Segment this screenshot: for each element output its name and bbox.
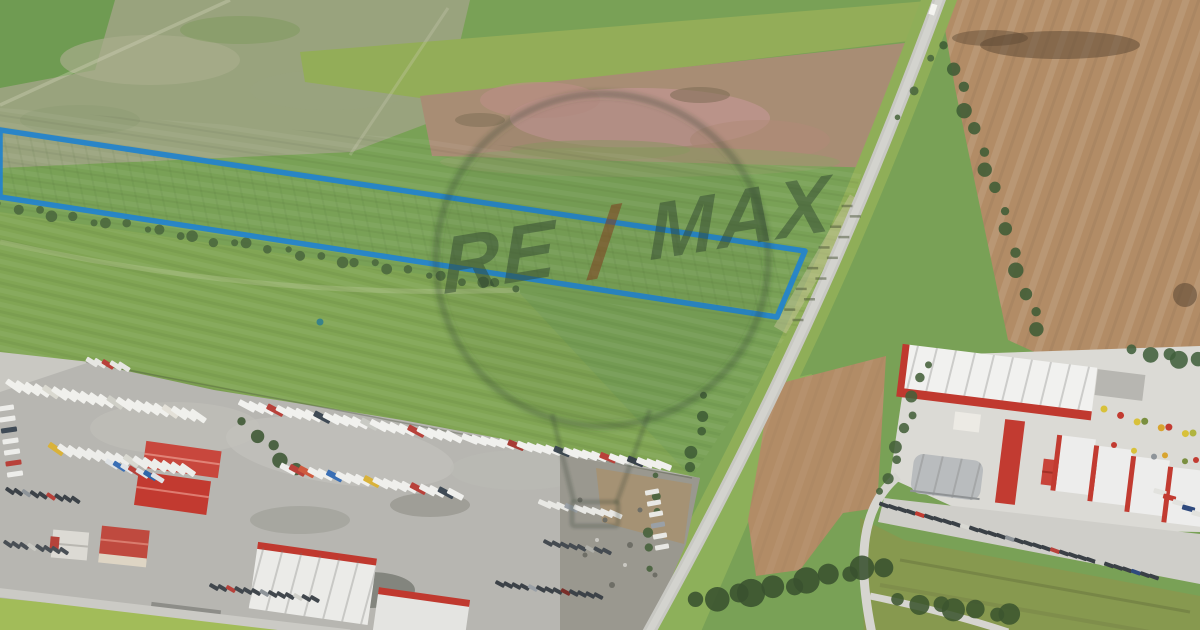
hedge-bush xyxy=(876,488,883,495)
hedge-bush xyxy=(36,206,44,214)
hedge-bush xyxy=(317,252,325,260)
hedge-bush xyxy=(646,566,652,572)
hedge-bush xyxy=(685,462,695,472)
hedge-bush xyxy=(895,115,901,121)
hedge-bush xyxy=(643,527,653,537)
hedge-bush xyxy=(850,556,875,581)
aerial-photo: RE / MAX xyxy=(0,0,1200,630)
hedge-bush xyxy=(645,543,653,551)
hedge-bush xyxy=(269,440,279,450)
hedge-bush xyxy=(100,218,111,229)
hedge-bush xyxy=(909,595,929,615)
equipment-dot xyxy=(1131,448,1137,454)
hedge-bush xyxy=(874,558,893,577)
hedge-bush xyxy=(251,430,264,443)
hedge-bush xyxy=(209,238,218,247)
hedge-bush xyxy=(381,264,392,275)
furrow-tick xyxy=(796,288,807,291)
hedge-bush xyxy=(241,237,252,248)
hedge-bush xyxy=(46,211,58,223)
fallow-patch xyxy=(180,16,300,44)
hedge-bush xyxy=(91,219,98,226)
office-building xyxy=(98,526,150,568)
hedge-bush xyxy=(909,412,917,420)
hedge-bush xyxy=(999,603,1021,625)
equipment-dot xyxy=(1117,412,1124,419)
hedge-bush xyxy=(68,212,77,221)
hedge-bush xyxy=(1020,288,1032,300)
furrow-tick xyxy=(850,215,861,218)
hedge-bush xyxy=(285,246,291,252)
hedge-bush xyxy=(337,257,349,269)
equipment-dot xyxy=(1182,430,1189,437)
hedge-bush xyxy=(177,232,185,240)
dark-patch xyxy=(455,113,505,127)
hedge-bush xyxy=(1031,307,1040,316)
hedge-bush xyxy=(1001,207,1009,215)
hedge-bush xyxy=(959,82,969,92)
map-marker-dot xyxy=(317,319,324,326)
hedge-bush xyxy=(1008,263,1023,278)
house xyxy=(49,529,89,560)
equipment-dot xyxy=(1193,457,1199,463)
hedge-bush xyxy=(404,265,413,274)
equipment-dot xyxy=(1141,418,1148,425)
furrow-tick xyxy=(838,236,849,239)
equipment-dot xyxy=(1134,418,1141,425)
hedge-bush xyxy=(980,147,989,156)
hedge-bush xyxy=(14,205,24,215)
hedge-bush xyxy=(942,598,965,621)
hedge-bush xyxy=(349,258,358,267)
hedge-bush xyxy=(186,230,198,242)
hedge-bush xyxy=(697,411,708,422)
furrow-tick xyxy=(827,257,838,260)
hedge-bush xyxy=(1127,344,1137,354)
hedge-bush xyxy=(761,575,784,598)
watermark-slash: / xyxy=(584,187,625,300)
equipment-dot xyxy=(1182,458,1188,464)
watermark-re: RE xyxy=(441,203,559,312)
hedge-bush xyxy=(989,182,1000,193)
hedge-bush xyxy=(295,251,305,261)
hedge-bush xyxy=(905,391,917,403)
satellite-scene: RE / MAX xyxy=(0,0,1200,630)
equipment-dot xyxy=(1165,424,1172,431)
hedge-bush xyxy=(688,592,703,607)
hedge-bush xyxy=(968,122,980,134)
equipment-dot xyxy=(1111,442,1117,448)
hedge-bush xyxy=(891,593,904,606)
hedge-bush xyxy=(927,55,934,62)
furrow-tick xyxy=(804,298,815,301)
small-office xyxy=(953,411,981,432)
hedge-bush xyxy=(910,86,919,95)
hedge-bush xyxy=(1143,347,1159,363)
hedge-bush xyxy=(889,441,902,454)
hedge-bush xyxy=(372,259,379,266)
hangar xyxy=(910,453,984,501)
hedge-bush xyxy=(892,455,901,464)
industrial-complex xyxy=(860,344,1200,630)
dark-patch xyxy=(670,87,730,103)
hedge-bush xyxy=(1029,322,1043,336)
hedge-bush xyxy=(145,226,151,232)
furrow-tick xyxy=(784,308,795,311)
hedge-bush xyxy=(653,473,659,479)
equipment-dot xyxy=(1162,452,1168,458)
hedge-bush xyxy=(426,273,432,279)
dark-soil-patch xyxy=(952,30,1028,46)
hedge-bush xyxy=(947,62,960,75)
hedge-bush xyxy=(883,473,894,484)
equipment-dot xyxy=(1158,424,1165,431)
equipment-dot xyxy=(1101,406,1108,413)
hedge-bush xyxy=(154,225,164,235)
furrow-tick xyxy=(815,277,826,280)
hedge-bush xyxy=(793,567,819,593)
hedge-bush xyxy=(1010,247,1020,257)
hedge-bush xyxy=(999,222,1012,235)
hedge-bush xyxy=(1170,351,1188,369)
hedge-bush xyxy=(956,103,971,118)
hedge-bush xyxy=(237,417,245,425)
hedge-bush xyxy=(231,239,238,246)
hedge-bush xyxy=(705,587,730,612)
equipment-dot xyxy=(1190,430,1197,437)
hedge-bush xyxy=(925,361,932,368)
hedge-bush xyxy=(697,427,706,436)
hedge-bush xyxy=(915,373,925,383)
dark-soil-spot xyxy=(1173,283,1197,307)
hedge-bush xyxy=(737,579,765,607)
hedge-bush xyxy=(978,163,992,177)
hedge-bush xyxy=(818,564,839,585)
hedge-bush xyxy=(899,423,909,433)
furrow-tick xyxy=(793,319,804,322)
stain xyxy=(250,506,350,534)
equipment-dot xyxy=(1151,454,1157,460)
hedge-bush xyxy=(684,446,697,459)
furrow-tick xyxy=(842,205,853,208)
hedge-bush xyxy=(122,219,131,228)
hedge-bush xyxy=(263,245,272,254)
hedge-bush xyxy=(939,41,947,49)
hedge-bush xyxy=(966,600,985,619)
furrow-tick xyxy=(807,267,818,270)
